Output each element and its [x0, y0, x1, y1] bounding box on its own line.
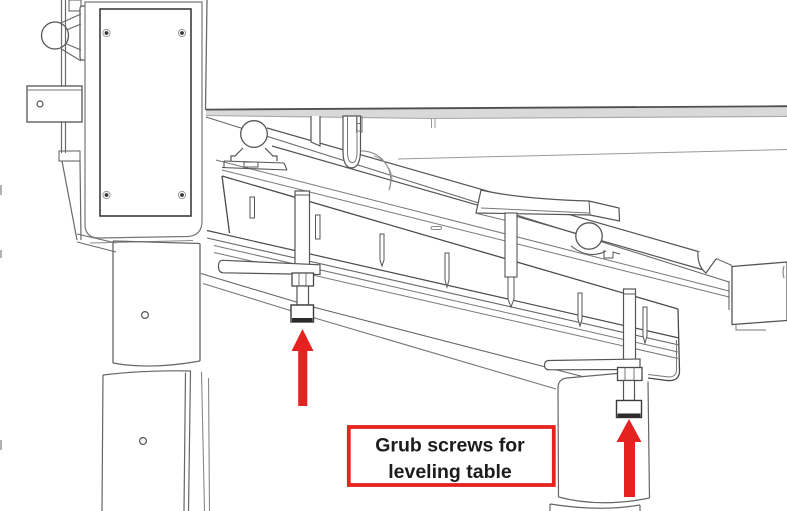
svg-text:Grub screws for: Grub screws for	[375, 435, 525, 457]
svg-text:leveling table: leveling table	[388, 461, 512, 483]
